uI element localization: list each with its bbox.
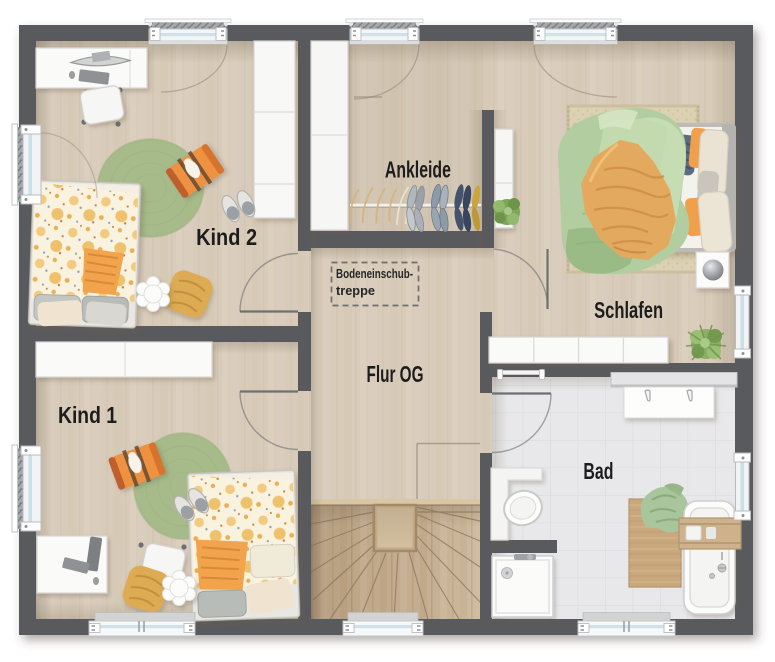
- svg-text:treppe: treppe: [336, 283, 375, 298]
- svg-text:Bodeneinschub-: Bodeneinschub-: [336, 266, 413, 281]
- svg-text:Bad: Bad: [583, 458, 613, 484]
- svg-text:Flur OG: Flur OG: [367, 361, 424, 387]
- svg-text:Ankleide: Ankleide: [385, 157, 451, 183]
- svg-text:Kind 2: Kind 2: [196, 224, 257, 250]
- svg-text:Schlafen: Schlafen: [594, 297, 663, 323]
- svg-text:Kind 1: Kind 1: [58, 402, 117, 428]
